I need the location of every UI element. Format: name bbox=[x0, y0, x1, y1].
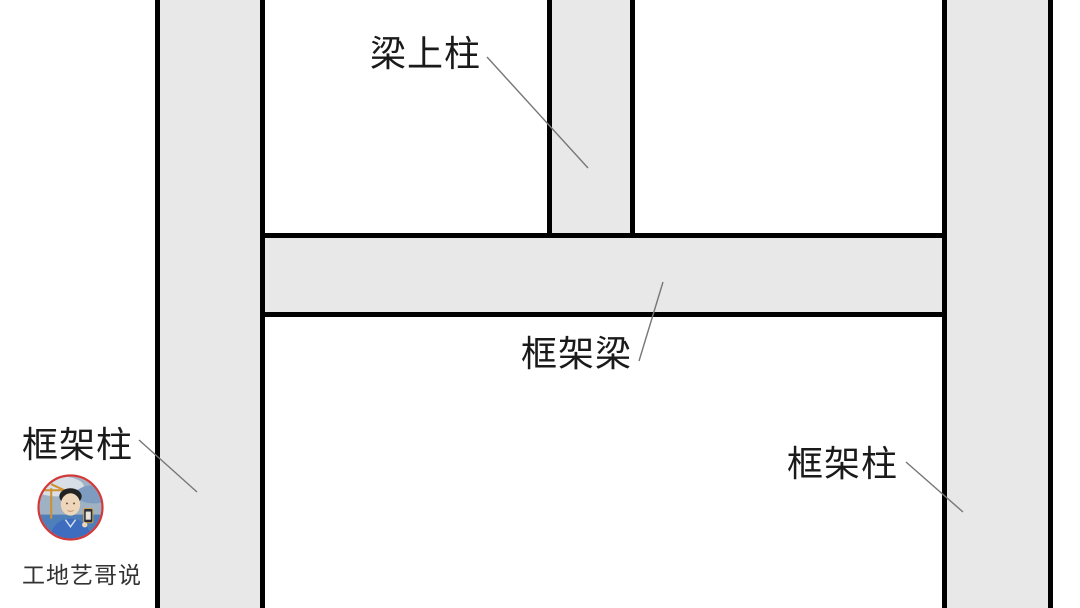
frame-column-right-shape bbox=[942, 0, 1053, 608]
watermark-name: 工地艺哥说 bbox=[22, 556, 142, 590]
beam-top-column-shape bbox=[547, 0, 635, 233]
label-beam-top-column: 梁上柱 bbox=[370, 36, 481, 72]
label-frame-column-right: 框架柱 bbox=[787, 446, 898, 482]
structural-diagram: 梁上柱 框架梁 框架柱 框架柱 bbox=[0, 0, 1080, 608]
frame-beam-shape bbox=[265, 233, 942, 317]
label-frame-column-left: 框架柱 bbox=[22, 427, 133, 463]
avatar-face bbox=[61, 493, 80, 515]
watermark-avatar bbox=[37, 474, 104, 541]
frame-column-left-shape bbox=[155, 0, 265, 608]
label-frame-beam: 框架梁 bbox=[521, 336, 632, 372]
